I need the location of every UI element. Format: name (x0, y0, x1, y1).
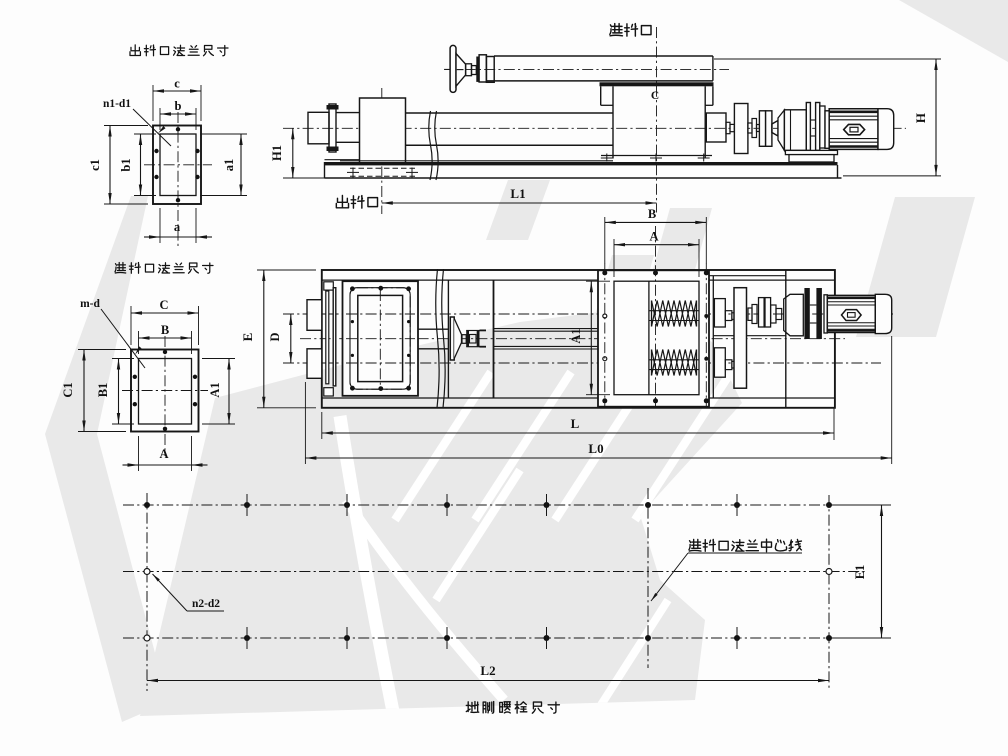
svg-text:a: a (174, 220, 181, 234)
svg-text:n2-d2: n2-d2 (192, 598, 220, 610)
svg-text:C: C (651, 90, 659, 102)
svg-text:m-d: m-d (80, 298, 100, 310)
svg-text:B: B (161, 323, 169, 337)
svg-text:n1-d1: n1-d1 (103, 98, 131, 110)
svg-text:b: b (175, 99, 182, 113)
svg-text:E1: E1 (853, 565, 867, 580)
svg-text:b1: b1 (119, 158, 133, 171)
svg-text:L0: L0 (588, 441, 603, 456)
svg-text:C: C (159, 298, 168, 312)
svg-text:A: A (159, 447, 168, 461)
svg-text:A: A (649, 230, 658, 244)
svg-text:H1: H1 (270, 145, 284, 161)
svg-text:A1: A1 (569, 328, 583, 343)
svg-text:L2: L2 (480, 663, 495, 678)
svg-text:B1: B1 (96, 383, 110, 398)
svg-text:c: c (174, 77, 180, 91)
svg-text:B: B (648, 207, 656, 221)
svg-text:C1: C1 (61, 382, 75, 397)
svg-text:A1: A1 (208, 382, 222, 397)
svg-text:L: L (571, 416, 580, 431)
svg-text:D: D (268, 332, 282, 341)
svg-text:L1: L1 (510, 186, 525, 201)
svg-text:H: H (913, 113, 928, 123)
svg-text:E: E (240, 333, 255, 342)
svg-text:a1: a1 (222, 159, 236, 172)
svg-text:c1: c1 (88, 159, 102, 171)
